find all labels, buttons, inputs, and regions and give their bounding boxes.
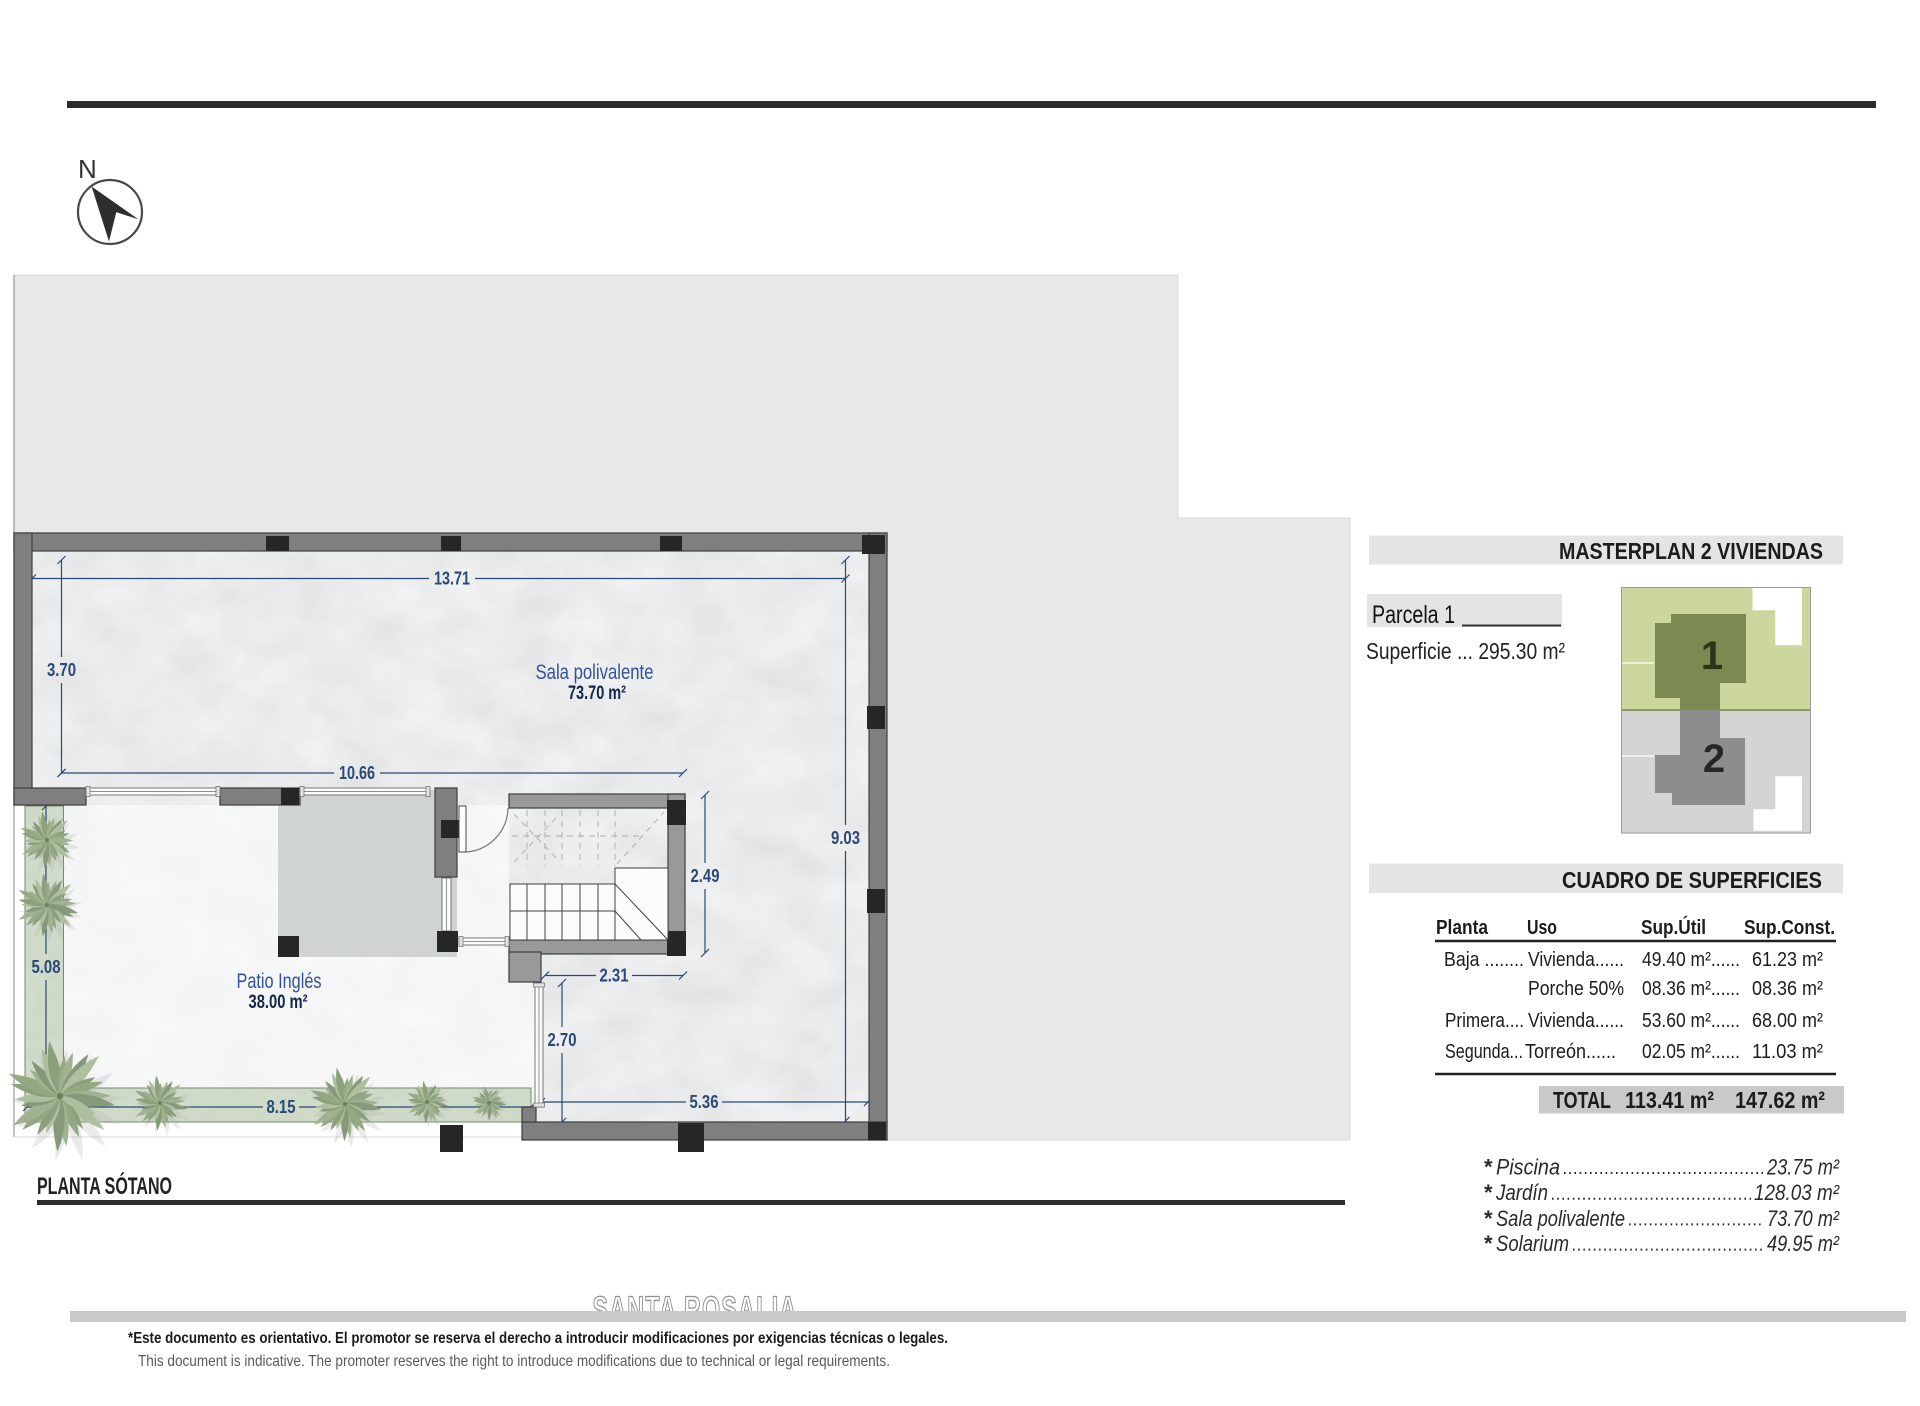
svg-text:11.03 m²: 11.03 m² (1752, 1041, 1823, 1063)
svg-text:8.15: 8.15 (267, 1097, 296, 1117)
svg-text:Parcela 1: Parcela 1 (1372, 601, 1455, 629)
svg-text:1: 1 (1701, 634, 1723, 678)
svg-text:Superficie ... 295.30 m²: Superficie ... 295.30 m² (1366, 638, 1565, 664)
svg-text:68.00 m²: 68.00 m² (1752, 1010, 1823, 1032)
svg-text:Porche 50%: Porche 50% (1528, 978, 1624, 1000)
svg-text:73.70 m²: 73.70 m² (568, 683, 626, 704)
svg-text:*: * (1484, 1231, 1493, 1256)
svg-text:Primera....: Primera.... (1445, 1010, 1524, 1032)
svg-text:73.70 m²: 73.70 m² (1767, 1206, 1840, 1231)
svg-text:147.62 m²: 147.62 m² (1735, 1087, 1825, 1113)
svg-text:N: N (78, 154, 97, 184)
svg-text:TOTAL: TOTAL (1553, 1087, 1611, 1113)
svg-text:128.03 m²: 128.03 m² (1754, 1180, 1840, 1205)
svg-text:This document is indicative. T: This document is indicative. The promote… (138, 1353, 890, 1370)
svg-text:23.75 m²: 23.75 m² (1766, 1155, 1839, 1180)
svg-text:CUADRO DE SUPERFICIES: CUADRO DE SUPERFICIES (1562, 867, 1822, 893)
svg-text:Sala polivalente: Sala polivalente (1496, 1206, 1625, 1231)
svg-text:Torreón......: Torreón...... (1525, 1041, 1616, 1063)
svg-text:5.36: 5.36 (690, 1092, 719, 1112)
svg-text:13.71: 13.71 (434, 569, 470, 589)
svg-text:*: * (1484, 1180, 1493, 1205)
svg-text:10.66: 10.66 (339, 763, 375, 783)
svg-text:02.05 m²......: 02.05 m²...... (1642, 1041, 1740, 1063)
svg-text:2: 2 (1703, 737, 1725, 781)
svg-text:Piscina: Piscina (1496, 1155, 1560, 1180)
svg-text:Sup.Const.: Sup.Const. (1744, 917, 1835, 939)
svg-text:Vivienda......: Vivienda...... (1528, 949, 1624, 971)
svg-text:2.70: 2.70 (548, 1030, 577, 1050)
svg-text:49.40 m²......: 49.40 m²...... (1642, 949, 1740, 971)
svg-text:*: * (1484, 1206, 1493, 1231)
svg-text:08.36 m²: 08.36 m² (1752, 978, 1823, 1000)
svg-text:*Este documento es orientativo: *Este documento es orientativo. El promo… (128, 1330, 948, 1347)
svg-text:Uso: Uso (1527, 917, 1557, 939)
svg-text:Vivienda......: Vivienda...... (1528, 1010, 1624, 1032)
svg-text:Planta: Planta (1436, 917, 1489, 939)
svg-text:3.70: 3.70 (47, 660, 76, 680)
svg-text:Segunda...: Segunda... (1445, 1041, 1523, 1063)
svg-text:2.49: 2.49 (691, 866, 720, 886)
svg-text:Baja ........: Baja ........ (1444, 949, 1524, 971)
svg-text:5.08: 5.08 (32, 957, 61, 977)
svg-text:08.36 m²......: 08.36 m²...... (1642, 978, 1740, 1000)
svg-text:2.31: 2.31 (600, 966, 629, 986)
svg-text:Jardín: Jardín (1495, 1180, 1548, 1205)
svg-text:PLANTA SÓTANO: PLANTA SÓTANO (37, 1172, 172, 1200)
svg-text:*: * (1484, 1155, 1493, 1180)
svg-text:53.60 m²......: 53.60 m²...... (1642, 1010, 1740, 1032)
svg-text:38.00 m²: 38.00 m² (249, 992, 308, 1013)
svg-text:9.03: 9.03 (831, 828, 860, 848)
svg-text:SANTA ROSALIA: SANTA ROSALIA (593, 1290, 798, 1329)
svg-text:Sala polivalente: Sala polivalente (536, 661, 654, 684)
svg-text:Sup.Útil: Sup.Útil (1641, 915, 1706, 939)
svg-text:Solarium: Solarium (1496, 1231, 1569, 1256)
svg-text:49.95 m²: 49.95 m² (1767, 1231, 1840, 1256)
svg-text:61.23 m²: 61.23 m² (1752, 949, 1823, 971)
svg-text:113.41 m²: 113.41 m² (1625, 1087, 1714, 1113)
svg-text:Patio Inglés: Patio Inglés (237, 970, 322, 993)
svg-text:MASTERPLAN 2 VIVIENDAS: MASTERPLAN 2 VIVIENDAS (1559, 538, 1823, 564)
